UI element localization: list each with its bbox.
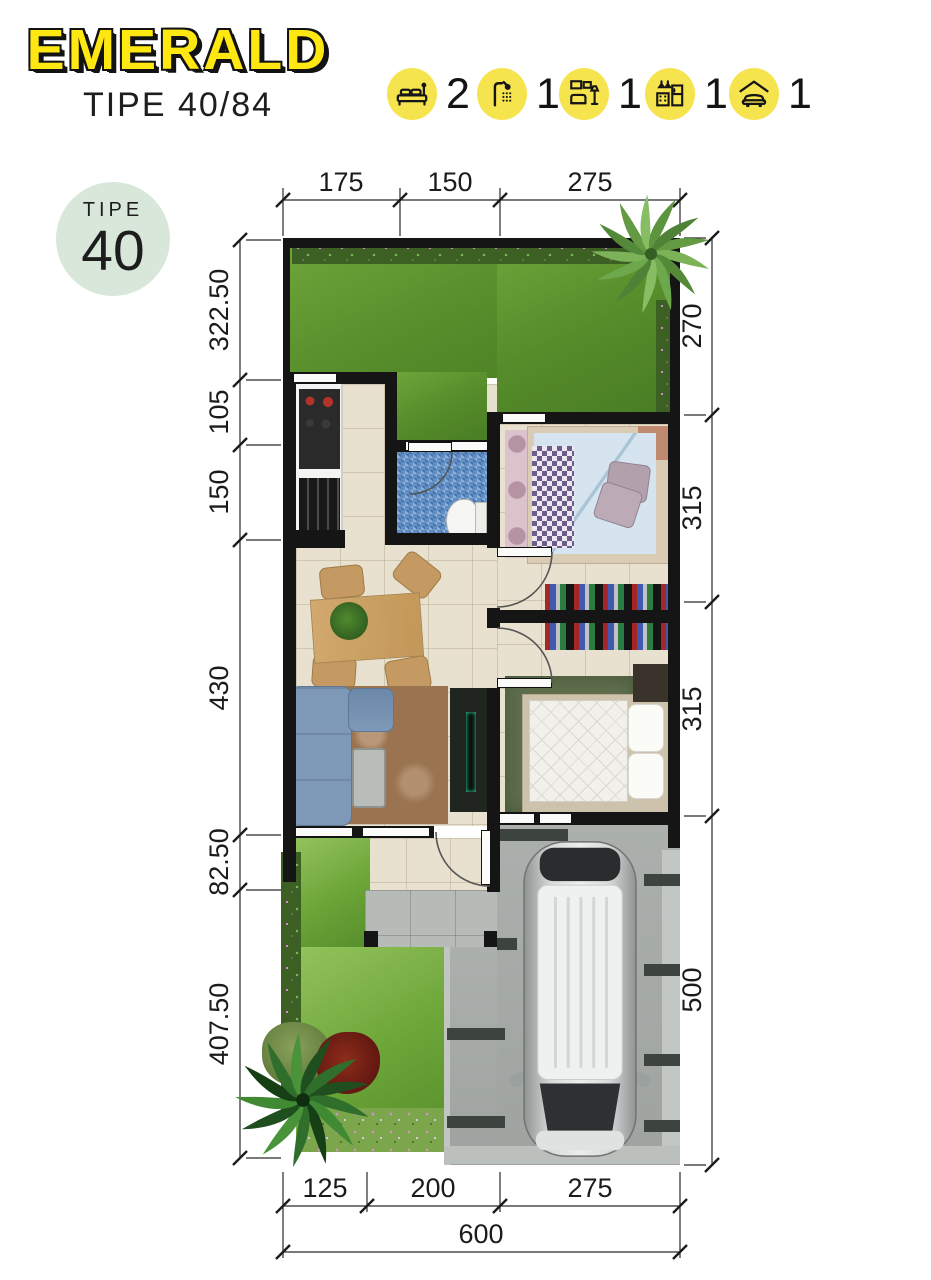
palm-tree-bottom [228, 1025, 378, 1175]
dim-left-2: 105 [204, 389, 234, 434]
dim-top-1: 175 [318, 167, 363, 197]
dim-top-2: 150 [427, 167, 472, 197]
dim-left-1: 322.50 [204, 269, 234, 352]
dim-bottom-2: 200 [410, 1173, 455, 1203]
palm-tree-top [585, 188, 717, 320]
dim-left-4: 430 [204, 665, 234, 710]
car [510, 836, 650, 1162]
dim-right-3: 315 [677, 686, 707, 731]
dimension-lines: 175 150 275 322.50 105 150 430 82.50 407… [0, 0, 931, 1280]
dim-right-2: 315 [677, 485, 707, 530]
dim-total-width: 600 [458, 1219, 503, 1249]
dim-bottom-3: 275 [567, 1173, 612, 1203]
floorplan-page: EMERALD TIPE 40/84 2 1 [0, 0, 931, 1280]
dim-bottom-1: 125 [302, 1173, 347, 1203]
dim-right-4: 500 [677, 967, 707, 1012]
dim-left-3: 150 [204, 469, 234, 514]
dim-left-5: 82.50 [204, 828, 234, 896]
